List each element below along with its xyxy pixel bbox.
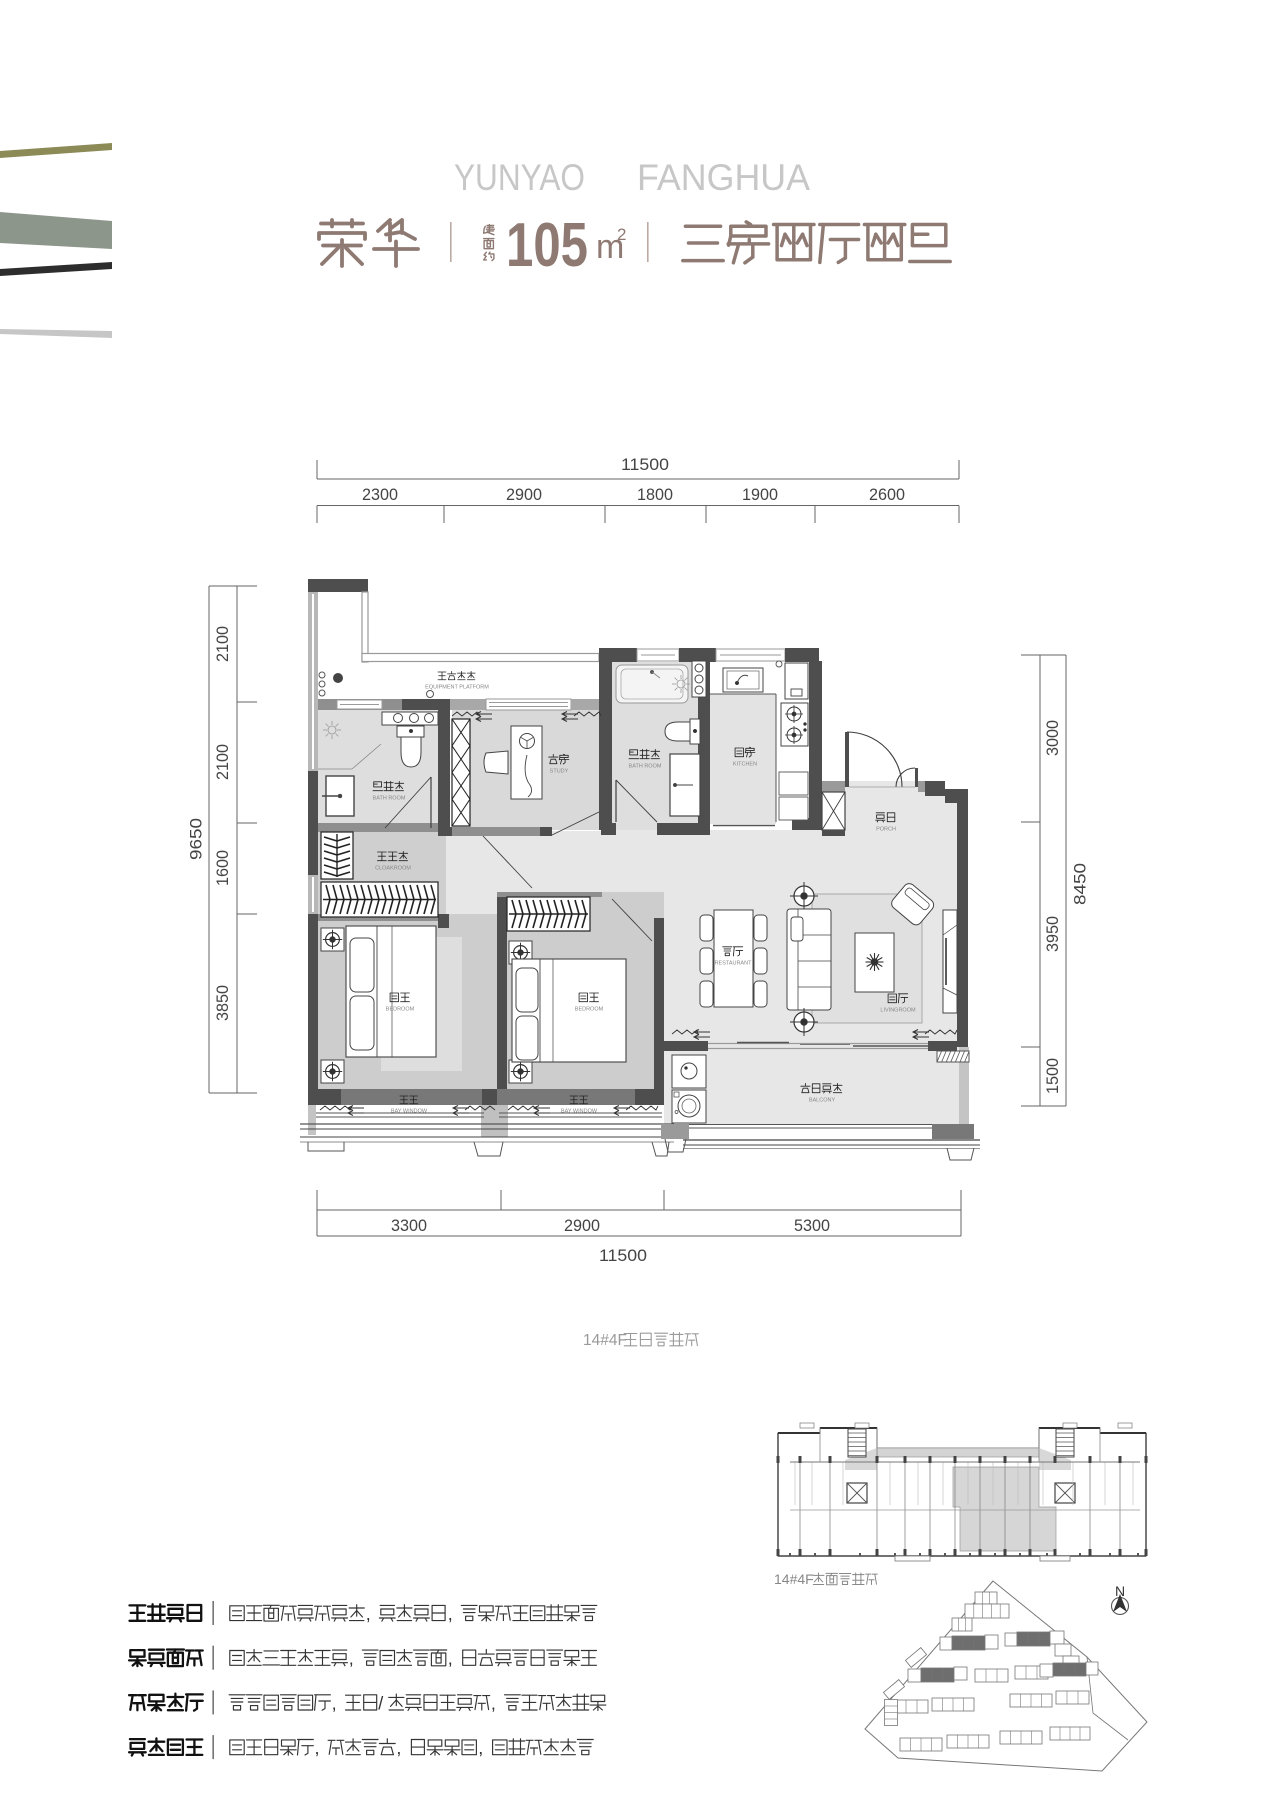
svg-text:BATH ROOM: BATH ROOM (373, 796, 406, 802)
svg-text:CLOAKROOM: CLOAKROOM (375, 866, 411, 872)
svg-text:5300: 5300 (794, 1217, 830, 1235)
svg-text:3850: 3850 (214, 985, 232, 1021)
svg-text:2600: 2600 (869, 486, 905, 504)
svg-text:11500: 11500 (599, 1246, 647, 1265)
svg-text:105: 105 (506, 211, 588, 280)
svg-text:LIVINGROOM: LIVINGROOM (880, 1008, 916, 1014)
svg-text:,: , (448, 1604, 453, 1624)
svg-text:STUDY: STUDY (550, 769, 569, 775)
svg-text:2900: 2900 (564, 1217, 600, 1235)
svg-text:,: , (349, 1649, 354, 1669)
svg-text:,: , (491, 1693, 496, 1713)
svg-text:BAY WINDOW: BAY WINDOW (561, 1109, 598, 1115)
svg-text:BATH ROOM: BATH ROOM (629, 764, 662, 770)
svg-text:YUNYAO: YUNYAO (454, 157, 585, 198)
svg-text:14#4F: 14#4F (774, 1571, 814, 1587)
svg-text:3300: 3300 (391, 1217, 427, 1235)
svg-text:2100: 2100 (214, 744, 232, 780)
svg-text:2100: 2100 (214, 626, 232, 662)
svg-text:BEDROOM: BEDROOM (386, 1007, 415, 1013)
svg-text:/: / (378, 1693, 383, 1713)
svg-text:8450: 8450 (1071, 863, 1090, 905)
svg-text:,: , (366, 1604, 371, 1624)
svg-text:11500: 11500 (621, 455, 669, 474)
svg-text:BEDROOM: BEDROOM (575, 1007, 604, 1013)
svg-text:1900: 1900 (742, 486, 778, 504)
svg-text:PORCH: PORCH (876, 827, 896, 833)
svg-text:1800: 1800 (637, 486, 673, 504)
svg-text:2900: 2900 (506, 486, 542, 504)
svg-text:RESTAURANT: RESTAURANT (715, 961, 753, 967)
svg-text:,: , (332, 1693, 337, 1713)
svg-text:14#4F: 14#4F (583, 1332, 627, 1349)
svg-text:9650: 9650 (187, 818, 206, 860)
svg-text:2: 2 (617, 225, 626, 244)
svg-text:1500: 1500 (1044, 1058, 1062, 1094)
svg-text:,: , (478, 1738, 483, 1758)
svg-text:FANGHUA: FANGHUA (637, 157, 810, 198)
svg-text:3950: 3950 (1044, 916, 1062, 952)
svg-text:KITCHEN: KITCHEN (733, 762, 757, 768)
svg-text:1600: 1600 (214, 850, 232, 886)
svg-text:BALCONY: BALCONY (809, 1098, 836, 1104)
svg-text:BAY WINDOW: BAY WINDOW (391, 1109, 428, 1115)
svg-text:EQUIPMENT PLATFORM: EQUIPMENT PLATFORM (425, 685, 489, 691)
svg-text:,: , (396, 1738, 401, 1758)
svg-text:2300: 2300 (362, 486, 398, 504)
svg-text:,: , (448, 1649, 453, 1669)
svg-text:,: , (315, 1738, 320, 1758)
svg-text:3000: 3000 (1044, 720, 1062, 756)
